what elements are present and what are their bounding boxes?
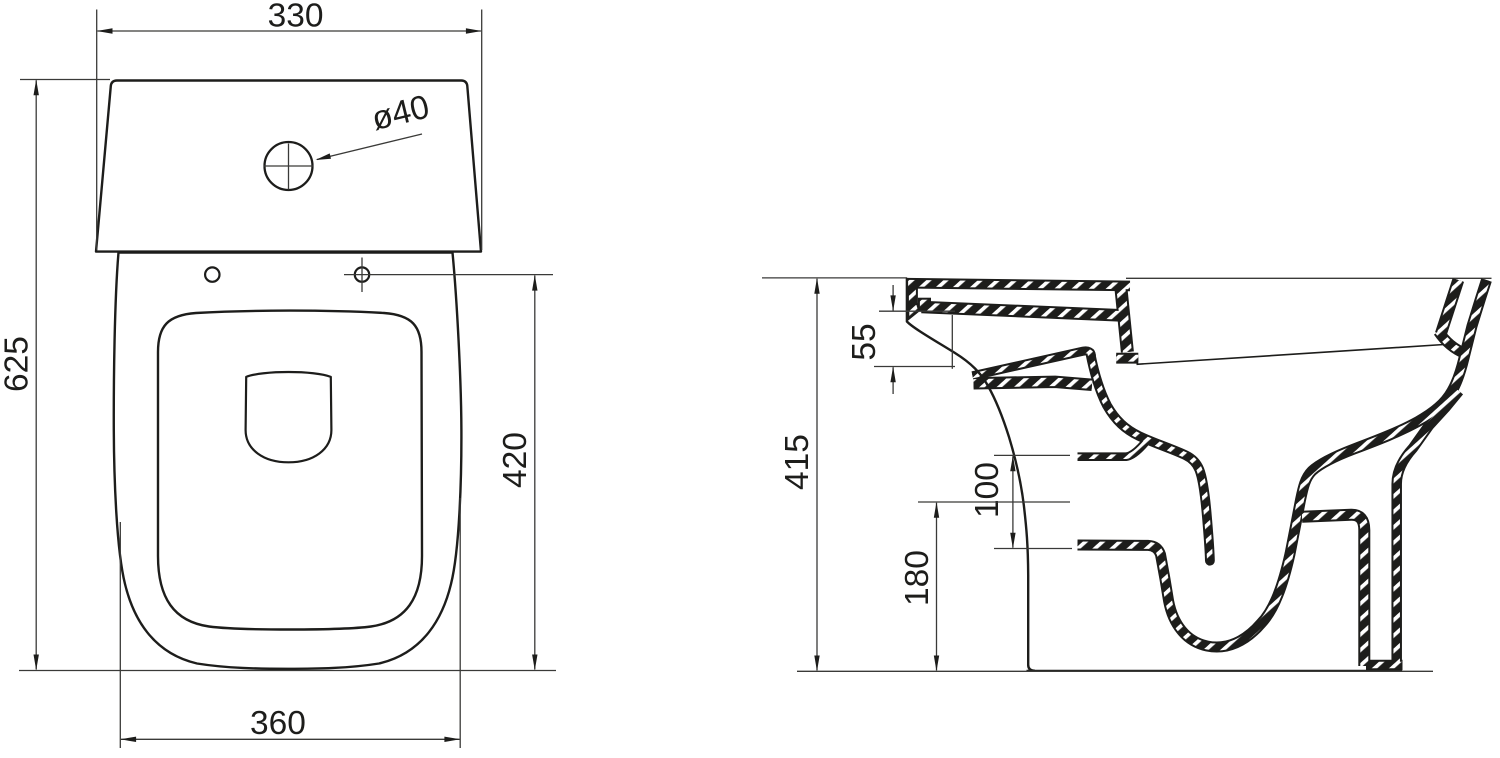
svg-text:420: 420: [497, 432, 534, 488]
svg-text:330: 330: [268, 0, 324, 35]
svg-text:100: 100: [969, 462, 1006, 518]
svg-text:415: 415: [779, 434, 816, 490]
svg-text:55: 55: [846, 323, 883, 360]
svg-text:360: 360: [250, 705, 306, 742]
svg-text:625: 625: [0, 336, 36, 392]
svg-text:180: 180: [899, 550, 936, 606]
